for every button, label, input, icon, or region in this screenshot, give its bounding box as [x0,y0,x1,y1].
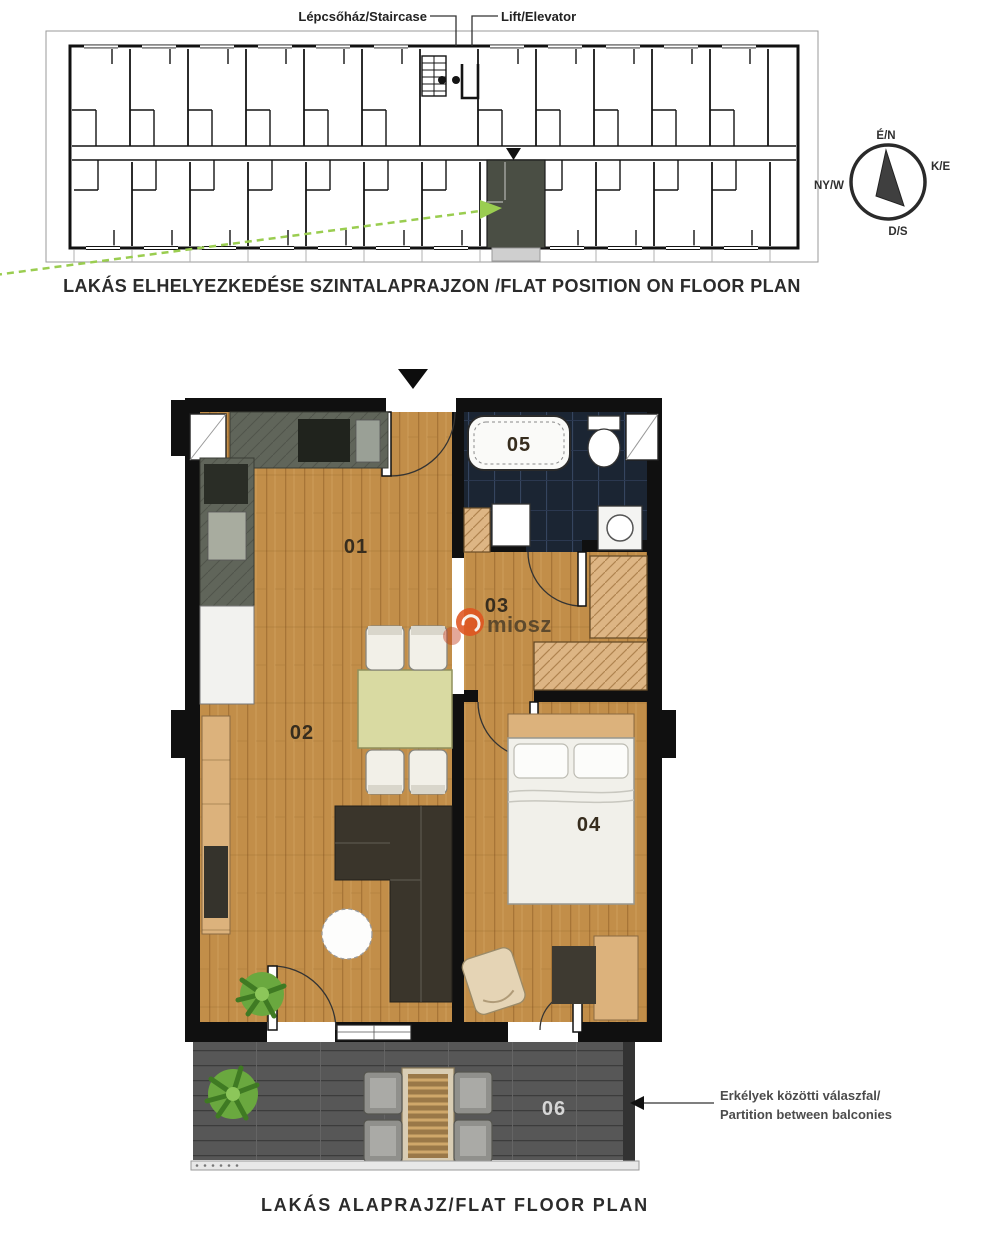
room-label-kitchen: 01 [344,536,368,558]
toilet-icon [588,416,620,467]
staircase-label: Lépcsőház/Staircase [298,9,427,24]
fridge [208,512,246,560]
kitchen-appliance [204,464,248,504]
balcony-table [402,1068,454,1164]
floor-plan-document: Lépcsőház/Staircase Lift/Elevator É/N K/… [0,0,1000,1247]
building-overview: Lépcsőház/Staircase Lift/Elevator [0,9,818,275]
compass-south-label: D/S [888,226,908,238]
partition-annotation: Erkélyek közötti válaszfal/ Partition be… [630,1088,892,1122]
overview-caption: LAKÁS ELHELYEZKEDÉSE SZINTALAPRAJZON /FL… [63,275,801,296]
flat-caption: LAKÁS ALAPRAJZ/FLAT FLOOR PLAN [261,1194,649,1215]
room-label-bedroom: 04 [577,814,601,836]
balcony-railing [191,1161,639,1170]
partition-note-line1: Erkélyek közötti válaszfal/ [720,1088,881,1103]
compass-east-label: K/E [931,161,951,173]
headboard [508,714,634,738]
desk [552,946,596,1004]
room-label-living: 02 [290,722,314,744]
window-living-balcony [337,1025,411,1040]
tv-unit [204,846,228,918]
partition-note-line2: Partition between balconies [720,1107,892,1122]
pillow-left [514,744,568,778]
wardrobe-tall [590,556,647,638]
highlight-balcony [492,248,540,261]
dining-table [358,670,452,748]
highlight-rect [487,160,545,248]
cooktop [298,419,350,462]
kitchen-cabinet [200,606,254,704]
elevator-label: Lift/Elevator [501,9,576,24]
window-top-left [190,414,226,460]
pillow-right [574,744,628,778]
window-top-right [626,414,658,460]
room-label-balcony: 06 [542,1098,566,1120]
washing-machine-icon [598,506,642,550]
entrance-marker-icon [398,369,428,389]
highlighted-flat-unit [487,148,545,261]
room-label-bathroom: 05 [507,434,531,456]
balcony: 06 [191,1042,639,1170]
compass-icon: É/N K/E D/S NY/W [814,129,951,238]
watermark-text: miosz [487,612,552,637]
compass-north-label: É/N [876,129,895,142]
kitchen-sink [356,420,380,462]
flat-plan: 01 05 03 [171,398,676,1042]
bath-cabinet [464,508,490,552]
compass-west-label: NY/W [814,180,844,192]
round-rug [322,909,372,959]
bathroom-sink [492,504,530,546]
wardrobe-low [534,642,647,690]
desk-shelf [594,936,638,1020]
